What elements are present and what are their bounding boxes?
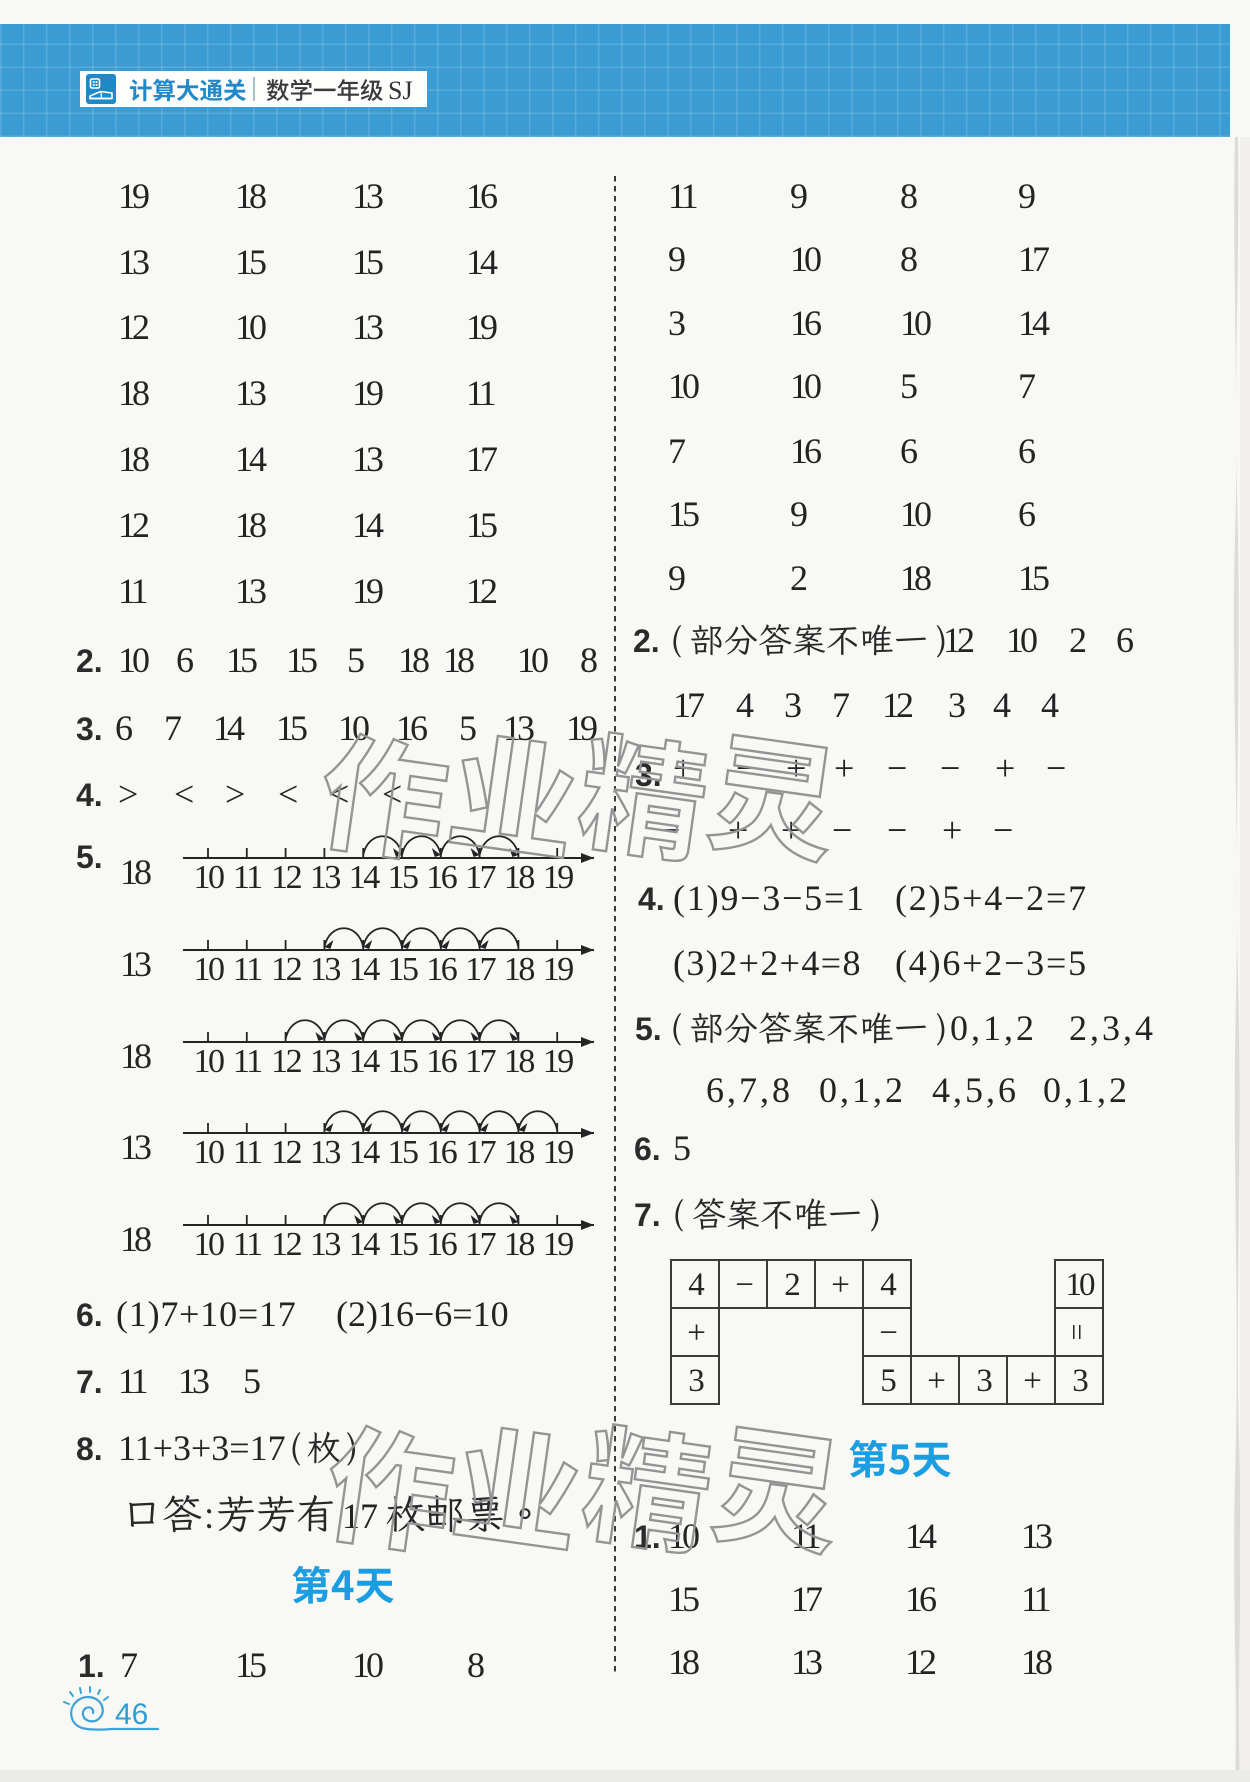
svg-text:17: 17 [465, 1043, 497, 1080]
svg-text:18: 18 [504, 1043, 535, 1080]
svg-text:13: 13 [310, 1043, 341, 1080]
svg-text:17: 17 [465, 1134, 497, 1171]
svg-text:14: 14 [349, 1226, 381, 1263]
svg-text:13: 13 [120, 1127, 151, 1167]
svg-text:12: 12 [271, 951, 302, 988]
svg-text:16: 16 [426, 951, 457, 988]
svg-text:18: 18 [504, 1226, 535, 1263]
svg-text:17: 17 [465, 1226, 497, 1263]
svg-text:14: 14 [349, 1134, 381, 1171]
svg-text:19: 19 [543, 1043, 574, 1080]
svg-text:12: 12 [271, 1043, 302, 1080]
svg-text:10: 10 [194, 1226, 225, 1263]
svg-text:+: + [831, 1267, 848, 1303]
svg-text:12: 12 [271, 1226, 302, 1263]
svg-text:10: 10 [1066, 1267, 1096, 1303]
svg-text:14: 14 [349, 951, 381, 988]
svg-text:15: 15 [388, 1226, 419, 1263]
svg-text:4: 4 [880, 1267, 896, 1303]
svg-text:11: 11 [233, 1043, 261, 1080]
svg-text:10: 10 [194, 1134, 225, 1171]
svg-text:18: 18 [504, 1134, 535, 1171]
svg-text:+: + [1023, 1363, 1040, 1399]
svg-text:46: 46 [115, 1698, 148, 1731]
svg-text:16: 16 [426, 1226, 457, 1263]
svg-text:19: 19 [543, 951, 574, 988]
svg-text:13: 13 [310, 951, 341, 988]
svg-text:14: 14 [349, 1043, 381, 1080]
svg-text:=: = [1060, 1324, 1093, 1341]
svg-text:3: 3 [976, 1363, 992, 1399]
svg-text:2: 2 [784, 1267, 799, 1303]
svg-text:11: 11 [233, 1226, 261, 1263]
svg-text:18: 18 [120, 1219, 151, 1259]
svg-text:3: 3 [1072, 1363, 1088, 1399]
svg-text:15: 15 [388, 1134, 419, 1171]
svg-text:−: − [879, 1315, 896, 1351]
svg-text:13: 13 [120, 944, 151, 984]
svg-text:18: 18 [504, 951, 535, 988]
svg-text:13: 13 [310, 1226, 341, 1263]
svg-text:19: 19 [543, 1134, 574, 1171]
svg-text:4: 4 [688, 1267, 704, 1303]
svg-text:11: 11 [233, 859, 261, 896]
svg-text:5: 5 [880, 1363, 896, 1399]
svg-text:19: 19 [543, 1226, 574, 1263]
svg-text:12: 12 [271, 1134, 302, 1171]
svg-text:+: + [927, 1363, 944, 1399]
svg-text:17: 17 [465, 951, 497, 988]
svg-text:3: 3 [688, 1363, 704, 1399]
svg-text:11: 11 [233, 951, 261, 988]
svg-text:+: + [687, 1315, 704, 1351]
svg-text:13: 13 [310, 1134, 341, 1171]
svg-text:15: 15 [388, 1043, 419, 1080]
svg-text:18: 18 [120, 1036, 151, 1076]
svg-text:−: − [735, 1267, 752, 1303]
svg-text:16: 16 [426, 1043, 457, 1080]
svg-text:16: 16 [426, 1134, 457, 1171]
svg-text:18: 18 [120, 852, 151, 892]
svg-text:15: 15 [388, 951, 419, 988]
svg-text:10: 10 [194, 1043, 225, 1080]
svg-text:11: 11 [233, 1134, 261, 1171]
svg-text:10: 10 [194, 859, 225, 896]
svg-text:12: 12 [271, 859, 302, 896]
svg-text:10: 10 [194, 951, 225, 988]
